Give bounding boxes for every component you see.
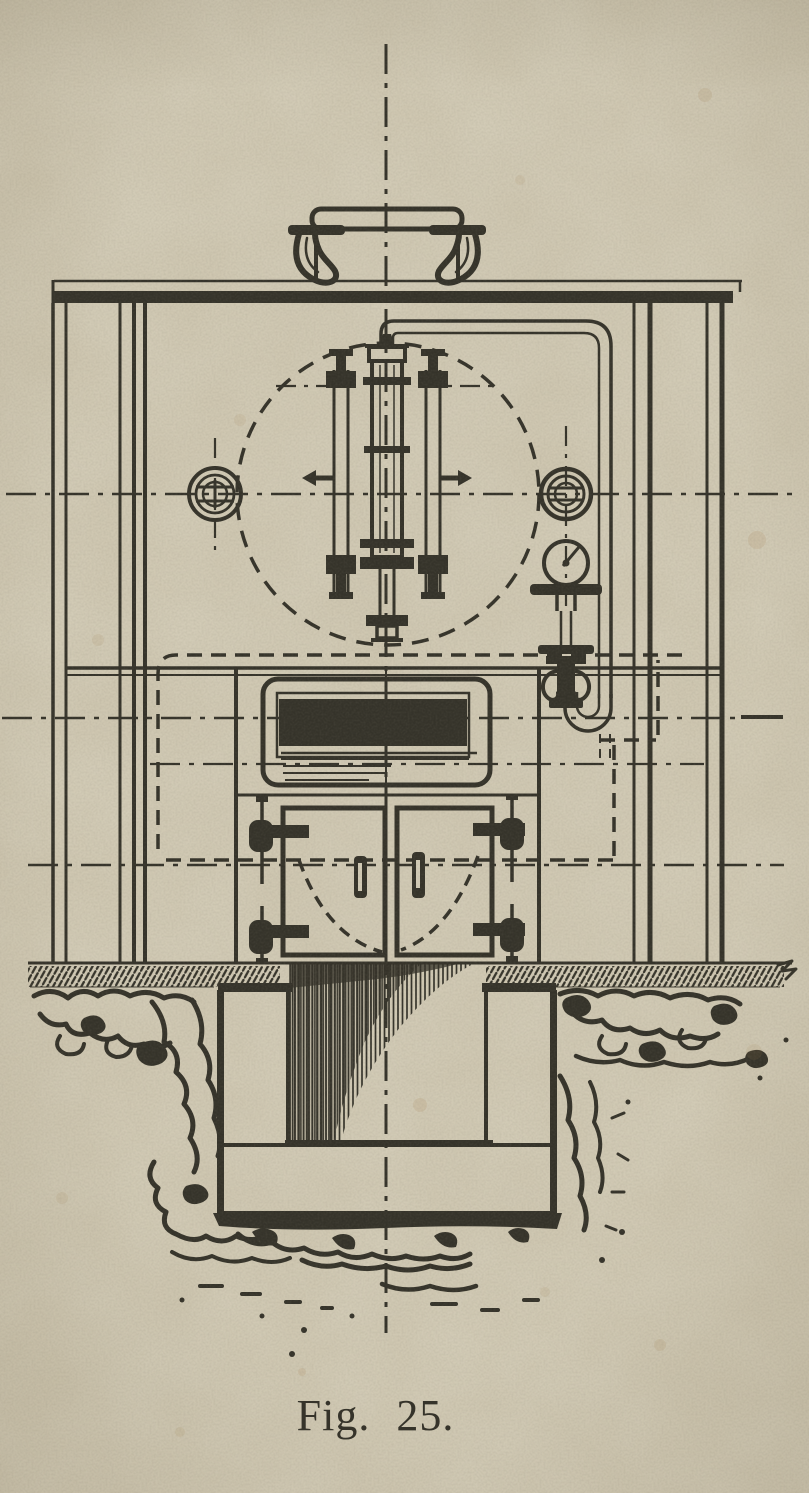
scanned-book-page: Fig. 25. xyxy=(0,0,809,1493)
paper-grain xyxy=(0,0,809,1493)
figure-caption: Fig. 25. xyxy=(0,1390,780,1441)
boiler-front-elevation-drawing xyxy=(0,0,809,1493)
